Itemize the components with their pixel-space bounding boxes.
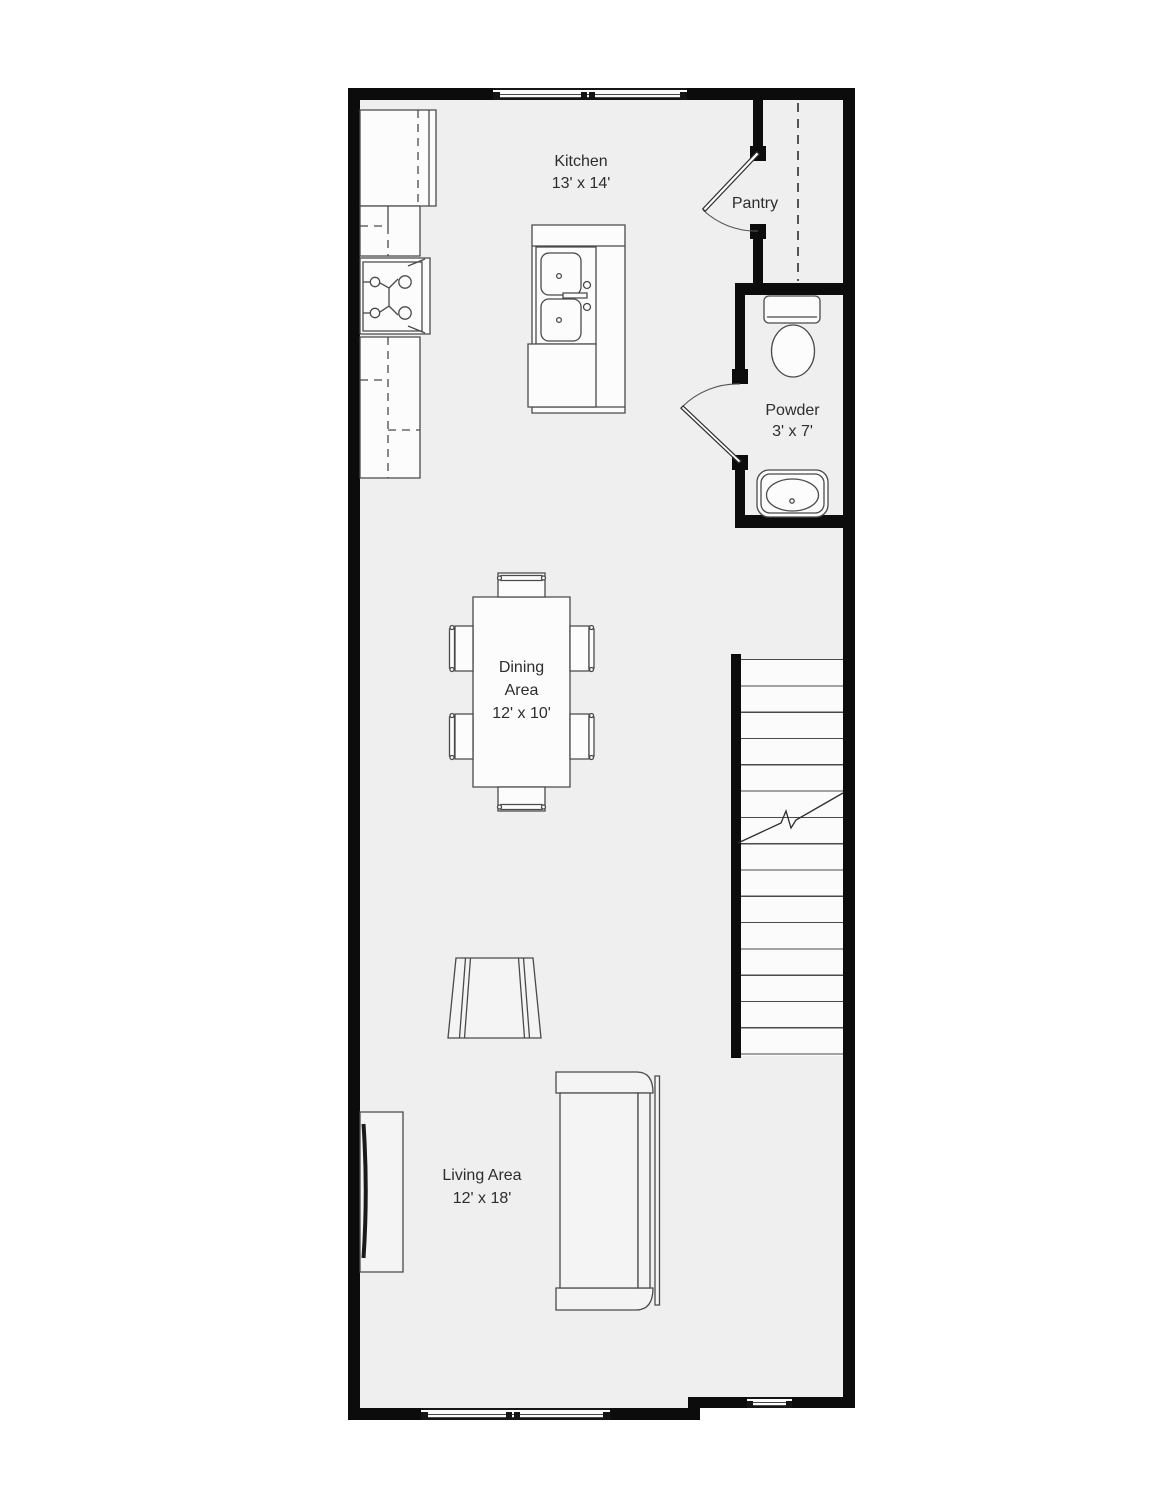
living-label: Living Area 12' x 18' — [402, 1164, 562, 1210]
room-dims: 12' x 18' — [402, 1187, 562, 1210]
sofa-armrest-top — [556, 1072, 653, 1093]
kitchen-counter-lower — [360, 337, 420, 478]
pantry-label: Pantry — [705, 193, 805, 215]
sofa — [556, 1072, 660, 1310]
dining-chair-top — [498, 573, 546, 597]
room-name: Powder — [732, 400, 853, 421]
tv-console — [360, 1112, 403, 1272]
sofa-back — [638, 1093, 650, 1288]
fixtures-layer — [0, 0, 1159, 1500]
dining-chair-bottom — [498, 787, 546, 811]
kitchen-label: Kitchen 13' x 14' — [496, 151, 666, 195]
burner-large — [399, 307, 411, 319]
pantry-door — [703, 152, 760, 231]
room-name: Dining — [461, 656, 582, 679]
bathroom-sink — [757, 470, 828, 517]
room-dims: 12' x 10' — [461, 702, 582, 725]
sofa-armrest-bottom — [556, 1288, 653, 1310]
room-name: Pantry — [705, 193, 805, 215]
sofa-seat — [560, 1093, 638, 1288]
room-dims: 13' x 14' — [496, 173, 666, 195]
refrigerator — [360, 110, 436, 206]
room-name: Living Area — [402, 1164, 562, 1187]
kitchen-island — [528, 225, 625, 413]
burner-small — [370, 277, 379, 286]
sofa-back-outer — [655, 1076, 660, 1305]
toilet — [764, 296, 820, 377]
stairs-break-line — [738, 793, 843, 843]
dining-label: Dining Area 12' x 10' — [461, 656, 582, 725]
room-dims: 3' x 7' — [732, 421, 853, 442]
tv-screen — [364, 1124, 366, 1258]
burner-large — [399, 276, 411, 288]
burner-small — [370, 308, 379, 317]
armchair — [448, 958, 541, 1038]
kitchen-counter-upper — [360, 206, 420, 256]
room-name: Kitchen — [496, 151, 666, 173]
stove — [360, 258, 430, 334]
floor-plan: Kitchen 13' x 14' Pantry Powder 3' x 7' … — [0, 0, 1159, 1500]
room-name: Area — [461, 679, 582, 702]
dishwasher — [528, 344, 596, 407]
powder-label: Powder 3' x 7' — [732, 400, 853, 442]
